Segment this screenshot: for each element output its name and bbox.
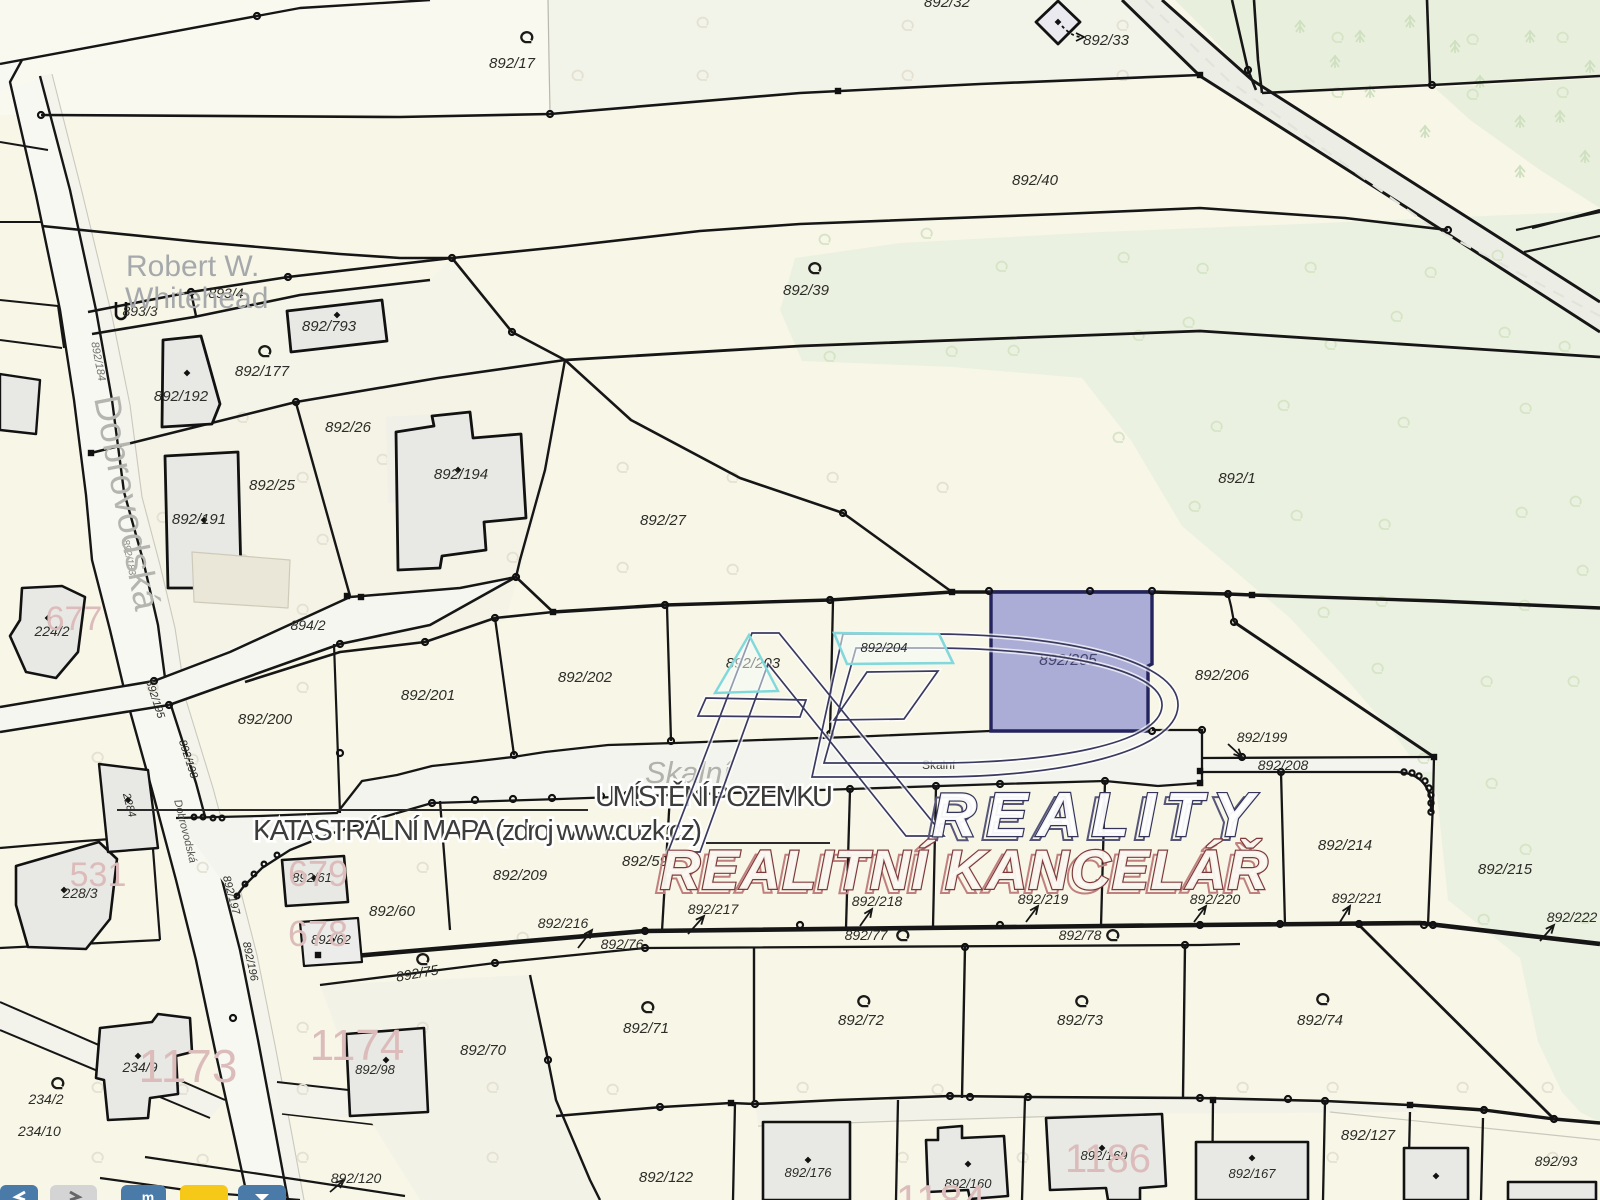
svg-text:892/74: 892/74	[1297, 1012, 1343, 1029]
svg-text:892/199: 892/199	[1237, 729, 1288, 745]
svg-text:892/77: 892/77	[845, 927, 889, 943]
svg-text:892/25: 892/25	[249, 477, 296, 494]
svg-text:678: 678	[288, 913, 348, 954]
svg-text:892/33: 892/33	[1083, 32, 1130, 49]
svg-text:892/176: 892/176	[785, 1165, 833, 1180]
svg-text:892/122: 892/122	[639, 1169, 694, 1186]
svg-text:892/206: 892/206	[1195, 667, 1250, 684]
svg-text:677: 677	[46, 600, 103, 638]
svg-text:KATASTRÁLNÍ MAPA (zdroj www.cu: KATASTRÁLNÍ MAPA (zdroj www.cuzk.cz)	[253, 814, 702, 847]
svg-text:REALITNÍ KANCELÁŘ: REALITNÍ KANCELÁŘ	[660, 838, 1269, 901]
svg-text:892/191: 892/191	[172, 511, 226, 528]
svg-text:892/208: 892/208	[1258, 757, 1309, 773]
svg-text:894/2: 894/2	[290, 617, 325, 633]
svg-text:892/73: 892/73	[1057, 1012, 1104, 1029]
svg-text:892/194: 892/194	[434, 466, 488, 483]
svg-text:892/214: 892/214	[1318, 837, 1372, 854]
svg-text:531: 531	[70, 856, 127, 894]
svg-text:892/216: 892/216	[538, 915, 589, 931]
svg-text:892/27: 892/27	[640, 512, 687, 529]
svg-text:892/127: 892/127	[1341, 1127, 1396, 1144]
svg-text:234/2: 234/2	[27, 1091, 63, 1107]
svg-text:892/76: 892/76	[601, 936, 644, 952]
svg-text:892/40: 892/40	[1012, 172, 1059, 189]
svg-text:892/32: 892/32	[924, 0, 971, 11]
svg-text:1173: 1173	[139, 1040, 238, 1092]
svg-text:892/215: 892/215	[1478, 861, 1533, 878]
svg-text:1184: 1184	[896, 1176, 986, 1200]
svg-text:892/202: 892/202	[558, 669, 613, 686]
svg-text:892/221: 892/221	[1332, 890, 1383, 906]
svg-text:892/204: 892/204	[861, 640, 908, 655]
svg-text:m: m	[142, 1189, 154, 1200]
svg-text:1174: 1174	[310, 1021, 405, 1070]
svg-text:892/39: 892/39	[783, 282, 830, 299]
svg-text:892/17: 892/17	[489, 55, 536, 72]
svg-text:892/72: 892/72	[838, 1012, 885, 1029]
svg-text:892/120: 892/120	[331, 1170, 382, 1186]
svg-text:892/78: 892/78	[1059, 927, 1102, 943]
svg-text:234/10: 234/10	[17, 1123, 61, 1139]
svg-text:679: 679	[288, 853, 348, 894]
svg-text:892/201: 892/201	[401, 687, 455, 704]
svg-text:Whitehead: Whitehead	[125, 282, 268, 315]
svg-text:Robert W.: Robert W.	[126, 250, 259, 283]
svg-text:892/177: 892/177	[235, 363, 290, 380]
svg-text:892/71: 892/71	[623, 1020, 669, 1037]
svg-text:892/209: 892/209	[493, 867, 548, 884]
svg-text:892/793: 892/793	[302, 318, 357, 335]
svg-text:892/93: 892/93	[1535, 1153, 1578, 1169]
svg-text:892/60: 892/60	[369, 903, 416, 920]
svg-text:892/200: 892/200	[238, 711, 293, 728]
svg-text:892/167: 892/167	[1229, 1166, 1277, 1181]
svg-text:892/1: 892/1	[1218, 470, 1256, 487]
svg-text:1186: 1186	[1065, 1137, 1151, 1181]
svg-text:892/192: 892/192	[154, 388, 209, 405]
svg-text:892/222: 892/222	[1547, 909, 1598, 925]
svg-text:892/26: 892/26	[325, 419, 372, 436]
svg-text:892/70: 892/70	[460, 1042, 507, 1059]
